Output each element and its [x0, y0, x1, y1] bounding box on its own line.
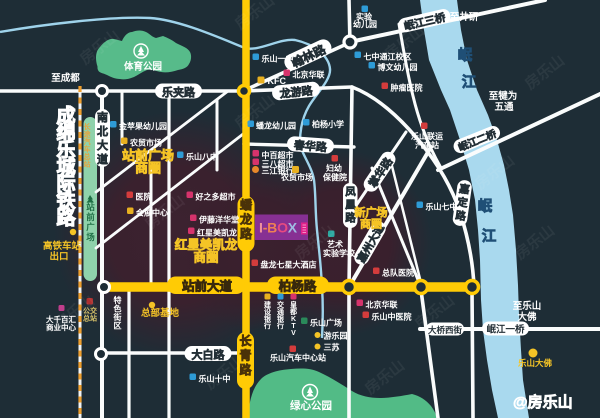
svg-text:皇都KTV: 皇都KTV [289, 300, 297, 337]
svg-text:北京华联: 北京华联 [293, 70, 325, 80]
svg-text:金苹果幼儿园: 金苹果幼儿园 [118, 121, 167, 131]
svg-text:肿瘤医院: 肿瘤医院 [391, 83, 423, 93]
svg-text:乐山联运汽车站: 乐山联运汽车站 [411, 131, 443, 150]
svg-text:成绵乐城际铁路: 成绵乐城际铁路 [56, 104, 76, 229]
svg-text:乐山汽车中心站: 乐山汽车中心站 [270, 353, 326, 363]
svg-text:乐山广场: 乐山广场 [310, 318, 342, 328]
svg-text:游乐园: 游乐园 [324, 331, 348, 341]
svg-text:柏杨路: 柏杨路 [279, 279, 317, 294]
svg-text:农贸市场: 农贸市场 [280, 172, 313, 182]
svg-text:农贸市场: 农贸市场 [129, 138, 162, 148]
svg-text:北京华联: 北京华联 [366, 300, 398, 310]
svg-text:总队医院: 总队医院 [382, 268, 414, 278]
svg-text:至成都: 至成都 [51, 72, 80, 84]
svg-text:乐山大佛: 乐山大佛 [518, 358, 553, 368]
svg-text:乐夹路: 乐夹路 [162, 85, 196, 99]
svg-text:乐山八中: 乐山八中 [186, 152, 218, 162]
svg-text:KFC: KFC [268, 76, 287, 86]
svg-text:三苏: 三苏 [324, 342, 340, 352]
svg-text:伊藤洋华堂: 伊藤洋华堂 [198, 215, 239, 225]
svg-text:岷: 岷 [478, 198, 493, 215]
svg-text:蟠龙路: 蟠龙路 [240, 197, 253, 241]
svg-text:岷: 岷 [458, 47, 473, 64]
svg-text:大白路: 大白路 [192, 348, 226, 362]
svg-text:乐山一中: 乐山一中 [262, 54, 294, 64]
svg-text:体育公园: 体育公园 [124, 61, 162, 73]
svg-text:@房乐山: @房乐山 [513, 393, 573, 411]
svg-text:建设银行: 建设银行 [263, 300, 272, 330]
svg-text:长途汽车总站: 长途汽车总站 [84, 122, 92, 169]
svg-text:江: 江 [462, 73, 477, 91]
svg-text:站前大道: 站前大道 [182, 279, 233, 294]
svg-text:交通银行: 交通银行 [276, 300, 285, 330]
svg-text:博文幼儿园: 博文幼儿园 [378, 62, 418, 72]
svg-text:特色街区: 特色街区 [113, 295, 122, 331]
svg-text:盘龙七星大酒店: 盘龙七星大酒店 [261, 260, 317, 270]
svg-text:大桥西街: 大桥西街 [428, 325, 463, 335]
svg-text:乐山中医院: 乐山中医院 [372, 312, 412, 322]
svg-text:乐山七中: 乐山七中 [426, 202, 458, 212]
svg-text:江: 江 [482, 227, 497, 245]
svg-text:至井研: 至井研 [450, 11, 479, 23]
svg-text:好之多超市: 好之多超市 [195, 192, 236, 202]
svg-text:I-BOX: I-BOX [259, 220, 298, 236]
svg-text:总部基地: 总部基地 [141, 307, 180, 319]
svg-text:蟠龙幼儿园: 蟠龙幼儿园 [256, 121, 296, 131]
svg-text:红星美凯龙: 红星美凯龙 [197, 228, 237, 238]
svg-text:岷江一桥: 岷江一桥 [486, 324, 525, 336]
svg-text:柏杨小学: 柏杨小学 [312, 119, 344, 129]
svg-text:中百超市: 中百超市 [262, 150, 294, 160]
svg-text:绿心公园: 绿心公园 [290, 399, 332, 412]
svg-text:医院: 医院 [136, 192, 152, 202]
svg-text:站前广场: 站前广场 [86, 202, 95, 242]
